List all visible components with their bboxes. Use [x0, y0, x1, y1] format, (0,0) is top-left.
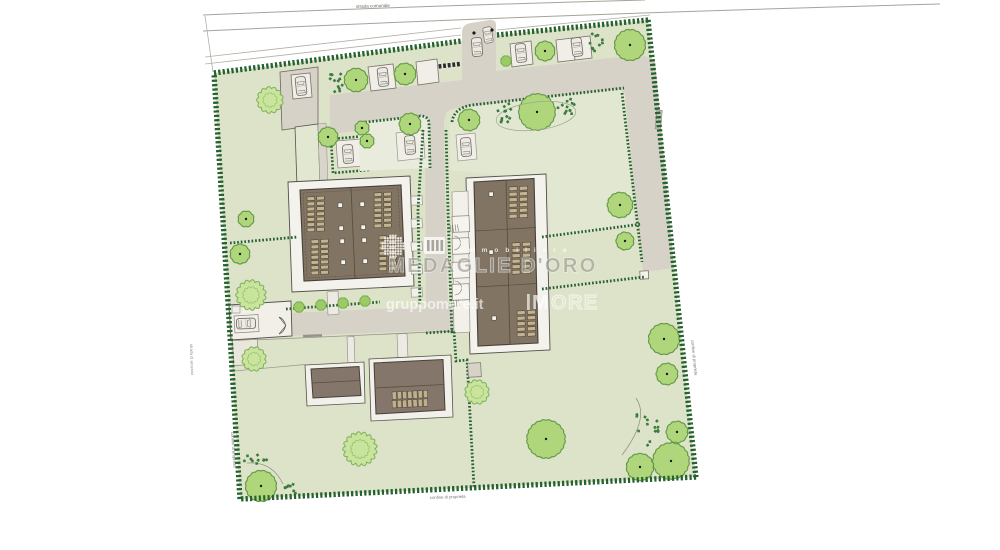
svg-text:M: M [532, 292, 549, 314]
svg-text:immobiliare: immobiliare [460, 247, 573, 254]
svg-text:ORE: ORE [551, 292, 599, 314]
svg-text:gruppomere.it: gruppomere.it [386, 297, 484, 313]
svg-text:MEDAGLIE D'ORO: MEDAGLIE D'ORO [388, 255, 597, 277]
